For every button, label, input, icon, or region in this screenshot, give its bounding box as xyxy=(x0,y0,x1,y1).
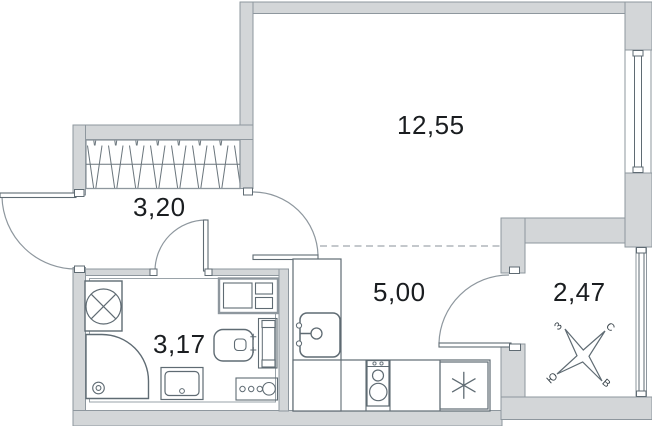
floor-plan: З С Ю В 12,55 3,20 5,00 3,17 2,47 xyxy=(0,0,652,426)
compass-north: С xyxy=(603,320,617,334)
bathroom-door xyxy=(150,220,212,276)
compass-west: З xyxy=(552,320,565,333)
kitchen-area-label: 5,00 xyxy=(373,279,426,305)
wall-hallway-top xyxy=(73,125,253,140)
wall-balcony-left-upper xyxy=(501,218,525,273)
bathroom-area-label: 3,17 xyxy=(153,331,206,357)
balcony-area-label: 2,47 xyxy=(553,279,606,305)
wall-hallway-left xyxy=(73,125,86,195)
compass-east: В xyxy=(600,377,613,391)
wall-hall-living-divider xyxy=(240,2,253,189)
bathroom-sink xyxy=(161,368,203,400)
compass-rose: З С Ю В xyxy=(544,320,617,390)
living-room-door xyxy=(244,188,319,260)
wall-bathroom-right xyxy=(279,269,289,411)
water-meters xyxy=(236,378,278,400)
towel-radiator xyxy=(259,319,278,369)
balcony-door xyxy=(439,267,521,351)
wall-bathroom-left xyxy=(73,268,86,426)
floor-plan-drawing: З С Ю В xyxy=(0,0,652,426)
hallway-area-label: 3,20 xyxy=(133,194,186,220)
compass-star xyxy=(557,329,605,381)
wall-bottom xyxy=(73,411,502,426)
wall-right-top xyxy=(625,2,652,50)
kitchen-counter-row xyxy=(293,360,490,411)
wall-bathroom-top-right xyxy=(207,269,279,276)
wardrobe xyxy=(86,140,240,189)
living-room-window xyxy=(625,50,651,173)
toilet xyxy=(214,330,256,362)
living-room-area-label: 12,55 xyxy=(397,112,465,138)
washing-machine xyxy=(85,281,122,331)
balcony-glazing xyxy=(636,247,647,397)
entrance-door xyxy=(0,190,85,273)
wall-balcony-bottom xyxy=(501,397,652,420)
wall-bathroom-top-left xyxy=(86,269,156,276)
wall-right-mid xyxy=(625,173,652,247)
storage-cabinet xyxy=(219,279,278,314)
shower-tray xyxy=(86,335,149,399)
wall-top xyxy=(240,2,652,14)
